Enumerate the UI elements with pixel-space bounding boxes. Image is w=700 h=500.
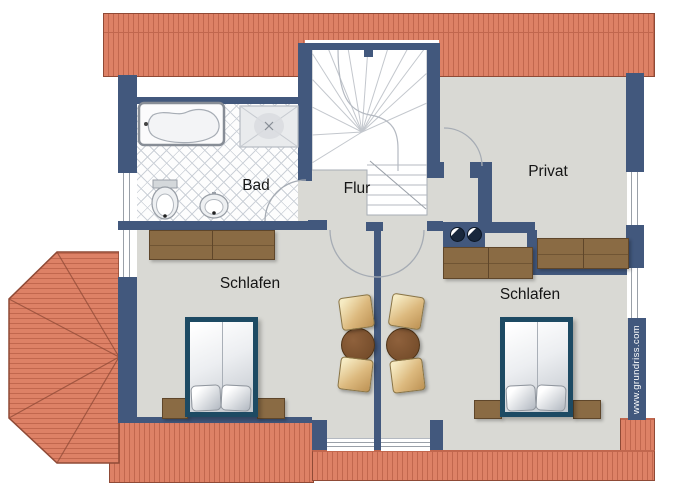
wall-flur-privat-left	[427, 162, 444, 178]
wall-bedroom-divider	[374, 229, 381, 450]
window-south-left	[327, 438, 374, 451]
room-label-privat: Privat	[528, 163, 568, 181]
watermark-wall: www.grundriss.com	[628, 318, 646, 420]
pillow	[536, 384, 568, 412]
room-label-bad: Bad	[242, 177, 270, 195]
watermark-text: www.grundriss.com	[632, 324, 643, 413]
wall-stair-east	[427, 43, 440, 163]
wall-east-upper	[626, 73, 644, 172]
wall-west-upper	[118, 75, 137, 173]
wall-flur-south-stub	[427, 221, 443, 231]
wall-west-lower	[118, 277, 137, 422]
roof-bottom-right-band	[312, 450, 655, 481]
roof-bottom-left-band	[109, 421, 314, 483]
chair	[338, 294, 375, 331]
bathtub-icon	[139, 103, 224, 145]
wall-stair-north	[312, 43, 440, 50]
nightstand	[474, 400, 502, 419]
hob-burner-icon	[450, 227, 465, 242]
roof-bay-octagon	[5, 248, 123, 468]
room-label-flur: Flur	[344, 180, 371, 198]
nightstand	[257, 398, 285, 419]
room-label-schlafen-west: Schlafen	[220, 275, 280, 293]
bidet-icon	[200, 192, 228, 218]
wall-stair-tab	[364, 43, 373, 57]
double-bed-west	[185, 317, 258, 417]
wall-privat-west	[478, 178, 492, 228]
window-east-privat	[627, 172, 644, 225]
kitchenette-counter	[443, 247, 533, 279]
wall-south-block-right	[430, 420, 443, 450]
pillow	[506, 384, 538, 412]
window-south-right	[381, 438, 430, 451]
floor-plan: Bad Flur Privat Schlafen Schlafen www.gr…	[0, 0, 700, 500]
hob-burner-icon	[467, 227, 482, 242]
pillow	[221, 384, 253, 412]
sideboard-privat	[537, 238, 629, 269]
window-east-schlafen	[627, 268, 644, 318]
double-bed-ost	[500, 317, 573, 417]
room-label-schlafen-ost: Schlafen	[500, 286, 560, 304]
pillow	[191, 384, 223, 412]
chair	[388, 293, 426, 331]
kitchenette-hob	[443, 222, 485, 247]
chair	[389, 357, 426, 394]
bathroom-fixtures	[137, 97, 312, 227]
chair	[337, 356, 374, 393]
wardrobe-schlafen-west	[149, 230, 275, 260]
nightstand	[573, 400, 601, 419]
shower-icon	[240, 106, 298, 147]
wall-flur-privat-right	[470, 162, 492, 178]
toilet-icon	[152, 180, 178, 219]
wall-south-block-left	[312, 420, 327, 450]
